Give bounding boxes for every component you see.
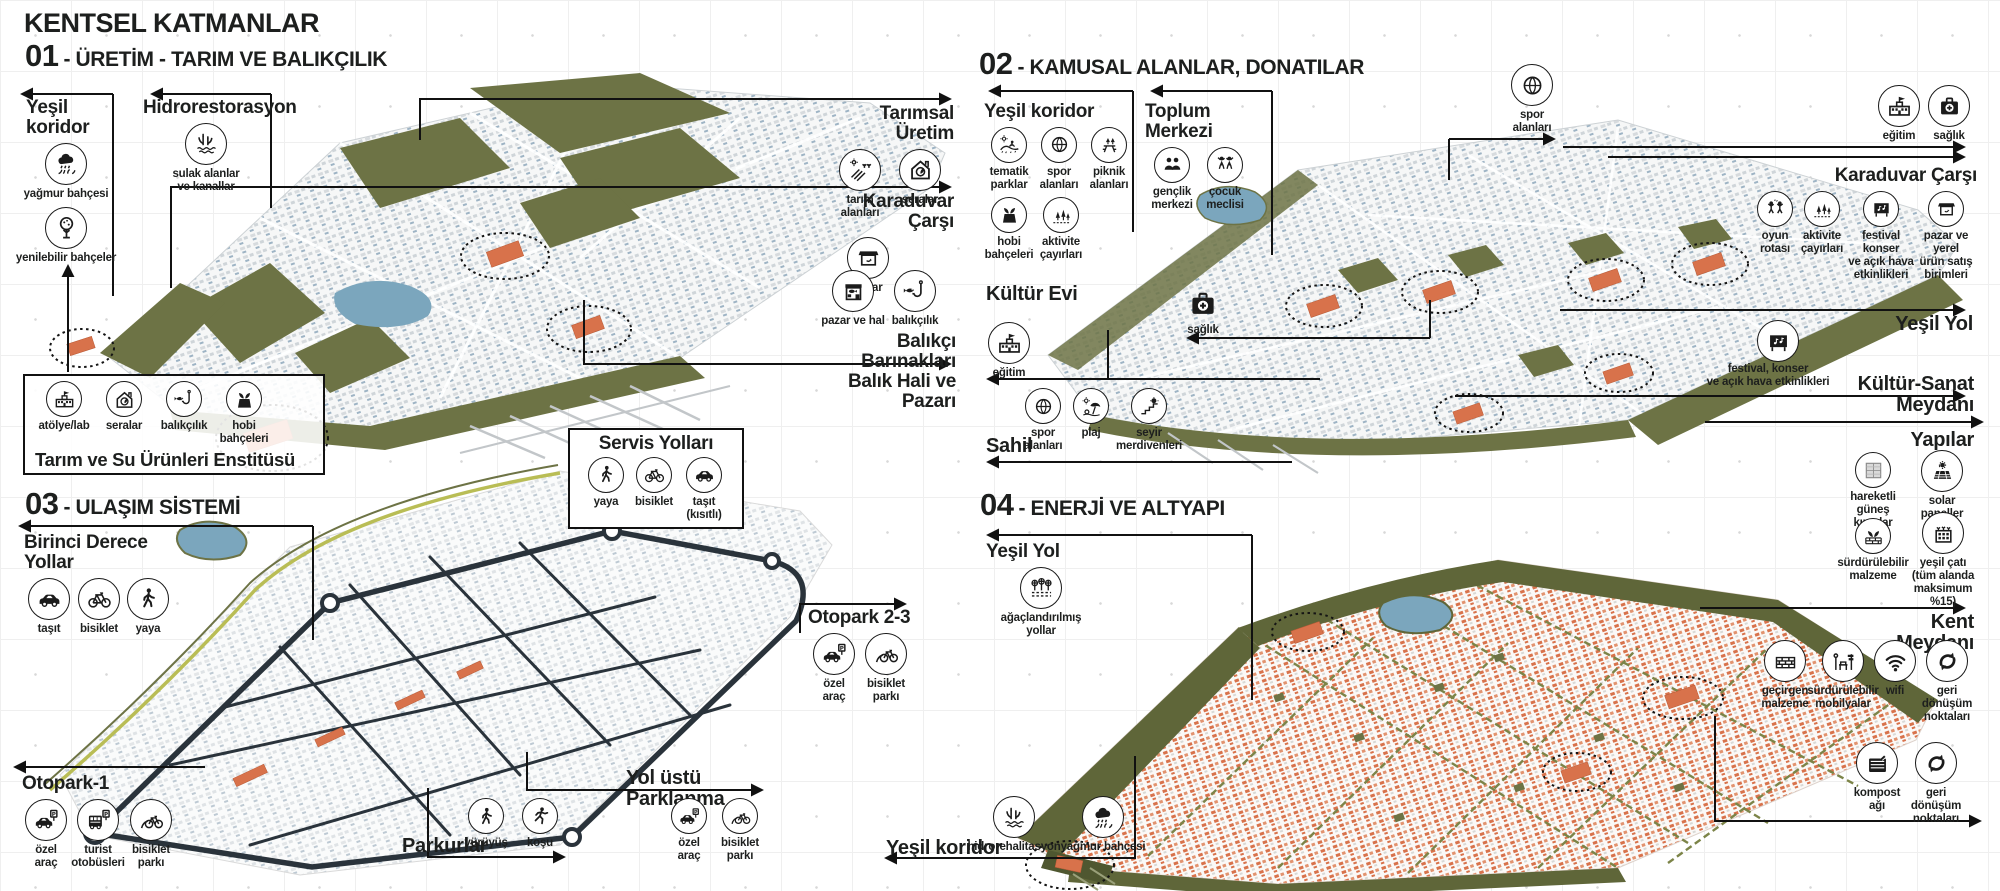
legend-yesil-koridor-q1: Yeşil koridor yağmur bahçesi yenilebilir…	[14, 98, 118, 265]
legend-item: özel araç	[808, 633, 860, 704]
legend-item: yürüyüş	[462, 798, 510, 850]
legend-item: tematik parklar	[984, 127, 1034, 192]
legend-kent-meydani-items: geçirgen malzeme sürdürülebilir mobilyal…	[1758, 640, 1980, 724]
greenhouse-icon	[899, 149, 941, 191]
legend-yagmur-bahcesi-q4: yağmur bahçesi	[1060, 796, 1146, 854]
section-number: 03	[25, 486, 58, 521]
legend-yapilar-yesilcati: yeşil çatı (tüm alanda maksimum %15)	[1908, 512, 1978, 609]
legend-hidrorehalitasyon: hidrorehalitasyon	[966, 796, 1062, 854]
legend-item: geri dönüşüm noktaları	[1916, 640, 1978, 724]
school-icon	[1878, 85, 1920, 127]
group-title: Yapılar	[1880, 430, 1974, 451]
fishing-icon	[894, 270, 936, 312]
legend-item: sulak alanlar ve kanallar	[143, 123, 269, 194]
legend-item: bisiklet parkı	[714, 798, 766, 863]
wifi-icon	[1874, 640, 1916, 682]
legend-item: atölye/lab	[33, 381, 95, 433]
thematic-parks-icon	[991, 127, 1027, 163]
picnic-icon	[1091, 127, 1127, 163]
legend-item	[1750, 320, 1806, 362]
legend-item: yağmur bahçesi	[14, 143, 118, 201]
edible-gardens-icon	[45, 207, 87, 249]
legend-birinci-derece-yollar: Birinci Derece Yollar taşıt bisiklet yay…	[24, 533, 184, 636]
children-assembly-icon	[1207, 147, 1243, 183]
legend-item: turist otobüsleri	[70, 799, 126, 870]
legend-item: plaj	[1068, 388, 1114, 440]
car-icon	[686, 457, 722, 493]
group-title: Yeşil koridor	[26, 98, 118, 138]
solar-panels-icon	[1921, 450, 1963, 492]
legend-item: geçirgen malzeme	[1758, 640, 1812, 711]
legend-item: sürdürülebilir mobilyalar	[1812, 640, 1874, 711]
group-title: Karaduvar Çarşı	[1753, 166, 1977, 186]
section-number: 02	[979, 46, 1012, 81]
wetlands-canals-icon	[993, 796, 1035, 838]
section-title-03: 03- ULAŞIM SİSTEMİ	[25, 486, 240, 522]
sustainable-furniture-icon	[1822, 640, 1864, 682]
bus-parking-icon	[77, 799, 119, 841]
legend-item: piknik alanları	[1084, 127, 1134, 192]
recycling-icon	[1926, 640, 1968, 682]
legend-geri-donusum: kompost ağı geri dönüşüm noktaları	[1850, 742, 1976, 826]
section-number: 04	[980, 487, 1013, 522]
group-title: Kültür Evi	[986, 284, 1077, 305]
sports-icon	[1025, 388, 1061, 424]
section-label: - ENERJİ VE ALTYAPI	[1018, 497, 1224, 520]
sports-icon	[1511, 64, 1553, 106]
legend-item: eğitim	[1874, 85, 1924, 143]
group-title: Tarım ve Su Ürünleri Enstitüsü	[35, 450, 315, 469]
legend-yesil-yol-q2: Yeşil Yol	[1845, 314, 1973, 340]
group-title: Birinci Derece Yollar	[24, 533, 184, 573]
legend-item: pazar ve hal	[820, 270, 886, 328]
legend-item: sağlık	[1924, 85, 1974, 143]
recycling-icon	[1915, 742, 1957, 784]
group-title: Hidrorestorasyon	[143, 98, 269, 118]
legend-item: bisiklet	[629, 457, 679, 509]
pedestrian-icon	[127, 578, 169, 620]
festival-icon	[1757, 320, 1799, 362]
rain-garden-icon	[45, 143, 87, 185]
legend-item: ağaçlandırılmış yollar	[986, 567, 1096, 638]
legend-item: aktivite çayırları	[1797, 191, 1847, 256]
legend-item: balıkçılık	[886, 270, 944, 328]
legend-item: bisiklet	[74, 578, 124, 636]
legend-toplum-merkezi: Toplum Merkezi gençlik merkezi çocuk mec…	[1145, 102, 1263, 212]
legend-item: taşıt	[24, 578, 74, 636]
legend-hidrorestorasyon: Hidrorestorasyon sulak alanlar ve kanall…	[143, 98, 269, 194]
legend-yapilar-solar: solar paneller	[1908, 450, 1976, 521]
legend-item: sürdürülebilir malzeme	[1842, 518, 1904, 583]
legend-item: wifi	[1874, 640, 1916, 698]
group-title: Toplum Merkezi	[1145, 102, 1263, 142]
sun-louvers-icon	[1855, 452, 1891, 488]
legend-item: gençlik merkezi	[1145, 147, 1199, 212]
legend-item: hidrorehalitasyon	[966, 796, 1062, 854]
fishing-icon	[166, 381, 202, 417]
bicycle-icon	[636, 457, 672, 493]
legend-item: hobi bahçeleri	[215, 381, 273, 446]
tree-lined-roads-icon	[1020, 567, 1062, 609]
school-icon	[988, 322, 1030, 364]
group-title: Yeşil Yol	[1845, 314, 1973, 335]
legend-item: spor alanları	[1018, 388, 1068, 453]
activity-meadows-icon	[1043, 197, 1079, 233]
legend-item: bisiklet parkı	[860, 633, 912, 704]
legend-item: oyun rotası	[1753, 191, 1797, 256]
legend-item: sağlık	[1178, 287, 1228, 337]
car-parking-icon	[671, 798, 707, 834]
legend-sahil-items: spor alanları plaj seyir merdivenleri	[1018, 388, 1190, 453]
legend-yapilar-malzeme: sürdürülebilir malzeme	[1842, 518, 1904, 583]
legend-item: festival konser ve açık hava etkinlikler…	[1847, 191, 1915, 282]
legend-item: özel araç	[22, 799, 70, 870]
section-title-04: 04- ENERJİ VE ALTYAPI	[980, 487, 1225, 523]
legend-balikci-barinaklari: pazar ve hal balıkçılık Balıkçı Barınakl…	[820, 270, 956, 412]
group-title: Yeşil koridor	[984, 102, 1144, 122]
legend-parkurlar-kosu: koşu	[518, 798, 562, 850]
section-label: - ULAŞIM SİSTEMİ	[63, 496, 240, 519]
legend-egitim-saglik-top: eğitim sağlık	[1874, 85, 1978, 143]
legend-item: koşu	[518, 798, 562, 850]
legend-item: taşıt (kısıtlı)	[679, 457, 729, 522]
section-number: 01	[25, 38, 58, 73]
section-label: - KAMUSAL ALANLAR, DONATILAR	[1017, 56, 1364, 79]
school-icon	[46, 381, 82, 417]
health-icon	[1928, 85, 1970, 127]
car-icon	[28, 578, 70, 620]
group-title: Balıkçı Barınakları Balık Hali ve Pazarı	[820, 332, 956, 412]
legend-spor-alanlari-top: spor alanları	[1504, 64, 1560, 135]
activity-meadows-icon	[1804, 191, 1840, 227]
legend-item: yaya	[124, 578, 172, 636]
legend-item: kompost ağı	[1850, 742, 1904, 813]
youth-center-icon	[1154, 147, 1190, 183]
canvas: { "page": { "title": "KENTSEL KATMANLAR"…	[0, 0, 2000, 891]
legend-item: hobi bahçeleri	[984, 197, 1034, 262]
group-title: Yeşil Yol	[986, 542, 1096, 562]
hobby-gardens-icon	[226, 381, 262, 417]
legend-item: geri dönüşüm noktaları	[1904, 742, 1968, 826]
section-title-01: 01- ÜRETİM - TARIM VE BALIKÇILIK	[25, 38, 387, 74]
group-title: Otopark 2-3	[808, 608, 920, 628]
group-title: Otopark-1	[22, 774, 182, 794]
green-roof-icon	[1922, 512, 1964, 554]
legend-kultur-evi-saglik: sağlık	[1178, 287, 1228, 337]
bike-parking-icon	[722, 798, 758, 834]
legend-item: yağmur bahçesi	[1060, 796, 1146, 854]
legend-item: özel araç	[664, 798, 714, 863]
pedestrian-icon	[588, 457, 624, 493]
sports-icon	[1041, 127, 1077, 163]
legend-item: bisiklet parkı	[126, 799, 176, 870]
legend-item: pazar ve yerel ürün satış birimleri	[1915, 191, 1977, 282]
viewing-stairs-icon	[1131, 388, 1167, 424]
legend-servis-yollari: Servis Yolları yaya bisiklet taşıt (kısı…	[568, 428, 744, 529]
compost-icon	[1856, 742, 1898, 784]
farm-fields-icon	[839, 149, 881, 191]
fish-market-icon	[832, 270, 874, 312]
wetlands-canals-icon	[185, 123, 227, 165]
market-icon	[1928, 191, 1964, 227]
legend-parkurlar-yuruyus: yürüyüş	[462, 798, 510, 850]
play-route-icon	[1757, 191, 1793, 227]
legend-otopark-1: Otopark-1 özel araç turist otobüsleri bi…	[22, 774, 182, 870]
legend-kultur-sanat-title: Kültür-Sanat Meydanı	[1826, 374, 1974, 421]
health-icon	[1186, 287, 1220, 321]
legend-yesil-yol-q4: Yeşil Yol ağaçlandırılmış yollar	[986, 542, 1096, 638]
group-title: Karaduvar Çarşı	[842, 192, 954, 232]
legend-otopark-23: Otopark 2-3 özel araç bisiklet parkı	[808, 608, 920, 704]
beach-icon	[1073, 388, 1109, 424]
walking-icon	[468, 798, 504, 834]
legend-item: yenilebilir bahçeler	[14, 207, 118, 265]
greenhouse-icon	[106, 381, 142, 417]
car-parking-icon	[25, 799, 67, 841]
legend-enstitu-box: atölye/lab seralar balıkçılık hobi bahçe…	[23, 374, 325, 475]
legend-item: çocuk meclisi	[1199, 147, 1251, 212]
car-parking-icon	[813, 633, 855, 675]
rain-garden-icon	[1082, 796, 1124, 838]
legend-item: yeşil çatı (tüm alanda maksimum %15)	[1908, 512, 1978, 609]
legend-karaduvar-carsi-q2: Karaduvar Çarşı oyun rotası aktivite çay…	[1753, 166, 1977, 281]
permeable-material-icon	[1764, 640, 1806, 682]
group-title: Servis Yolları	[576, 434, 736, 454]
legend-item: spor alanları	[1504, 64, 1560, 135]
legend-item: eğitim	[984, 322, 1034, 380]
legend-kultur-sanat-label: festival, konser ve açık hava etkinlikle…	[1700, 360, 1836, 389]
group-title: Kültür-Sanat Meydanı	[1826, 374, 1974, 416]
legend-item: spor alanları	[1034, 127, 1084, 192]
section-title-02: 02- KAMUSAL ALANLAR, DONATILAR	[979, 46, 1364, 82]
legend-item: solar paneller	[1908, 450, 1976, 521]
legend-yesil-koridor-q2: Yeşil koridor tematik parklar spor alanl…	[984, 102, 1144, 261]
legend-item: yaya	[583, 457, 629, 509]
section-label: - ÜRETİM - TARIM VE BALIKÇILIK	[63, 48, 387, 71]
group-title: Tarımsal Üretim	[826, 104, 954, 144]
bicycle-icon	[78, 578, 120, 620]
running-icon	[522, 798, 558, 834]
festival-icon	[1863, 191, 1899, 227]
legend-item: balıkçılık	[153, 381, 215, 433]
bike-parking-icon	[130, 799, 172, 841]
bike-parking-icon	[865, 633, 907, 675]
legend-item: seyir merdivenleri	[1114, 388, 1184, 453]
legend-yolustu-items: özel araç bisiklet parkı	[664, 798, 772, 863]
legend-kultur-evi-title: Kültür Evi	[986, 284, 1077, 310]
sustainable-material-icon	[1855, 518, 1891, 554]
legend-item: seralar	[95, 381, 153, 433]
legend-kultur-sanat-icon	[1750, 320, 1806, 362]
legend-item: aktivite çayırları	[1034, 197, 1088, 262]
legend-kultur-evi-egitim: eğitim	[984, 322, 1034, 380]
page-title: KENTSEL KATMANLAR	[24, 8, 319, 39]
hobby-gardens-icon	[991, 197, 1027, 233]
